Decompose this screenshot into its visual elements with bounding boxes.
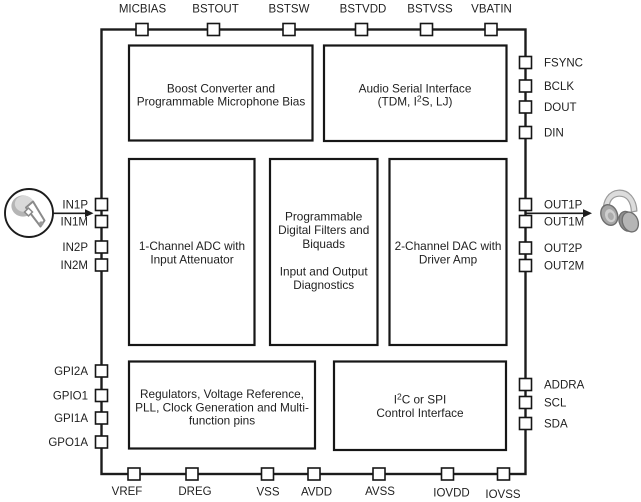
svg-text:Driver Amp: Driver Amp — [419, 253, 478, 267]
svg-text:SCL: SCL — [544, 398, 567, 410]
svg-text:function pins: function pins — [189, 414, 255, 428]
svg-text:OUT2M: OUT2M — [544, 261, 584, 273]
svg-text:Biquads: Biquads — [302, 237, 345, 251]
svg-text:Audio Serial Interface: Audio Serial Interface — [359, 81, 472, 95]
svg-text:IN2M: IN2M — [61, 260, 88, 272]
svg-text:OUT2P: OUT2P — [544, 243, 583, 255]
svg-text:Digital Filters and: Digital Filters and — [278, 223, 369, 237]
svg-text:VBATIN: VBATIN — [471, 4, 512, 16]
svg-text:MICBIAS: MICBIAS — [119, 4, 167, 16]
svg-text:GPO1A: GPO1A — [48, 437, 88, 449]
svg-text:GPIO1: GPIO1 — [53, 391, 88, 403]
svg-text:1-Channel ADC with: 1-Channel ADC with — [139, 239, 245, 253]
svg-text:IN2P: IN2P — [62, 242, 88, 254]
svg-text:Input Attenuator: Input Attenuator — [150, 253, 233, 267]
svg-text:AVDD: AVDD — [301, 487, 332, 499]
svg-text:BSTVDD: BSTVDD — [340, 4, 387, 16]
svg-text:SDA: SDA — [544, 419, 568, 431]
svg-text:DOUT: DOUT — [544, 102, 577, 114]
svg-text:GPI2A: GPI2A — [54, 366, 88, 378]
svg-text:DIN: DIN — [544, 128, 564, 140]
svg-text:PLL, Clock Generation and Mult: PLL, Clock Generation and Multi- — [135, 400, 309, 414]
svg-text:IOVDD: IOVDD — [433, 488, 469, 500]
svg-text:FSYNC: FSYNC — [544, 58, 583, 70]
svg-text:2-Channel DAC with: 2-Channel DAC with — [395, 239, 502, 253]
svg-text:AVSS: AVSS — [365, 486, 395, 498]
svg-text:VSS: VSS — [256, 487, 279, 499]
svg-text:IOVSS: IOVSS — [485, 489, 520, 501]
svg-text:BSTSW: BSTSW — [269, 4, 310, 16]
svg-text:Control Interface: Control Interface — [376, 406, 464, 420]
svg-text:BCLK: BCLK — [544, 81, 574, 93]
svg-text:BSTVSS: BSTVSS — [407, 4, 453, 16]
svg-text:Programmable Microphone Bias: Programmable Microphone Bias — [137, 94, 306, 108]
svg-text:ADDRA: ADDRA — [544, 380, 585, 392]
svg-text:IN1M: IN1M — [61, 217, 88, 229]
svg-text:VREF: VREF — [112, 486, 143, 498]
svg-text:OUT1M: OUT1M — [544, 217, 584, 229]
svg-text:Diagnostics: Diagnostics — [293, 278, 354, 292]
svg-text:OUT1P: OUT1P — [544, 200, 583, 212]
svg-text:GPI1A: GPI1A — [54, 413, 88, 425]
svg-text:IN1P: IN1P — [62, 200, 88, 212]
svg-text:BSTOUT: BSTOUT — [192, 4, 238, 16]
svg-text:(TDM, I2S, LJ): (TDM, I2S, LJ) — [378, 94, 453, 109]
svg-text:I2C or SPI: I2C or SPI — [394, 392, 447, 407]
svg-text:Regulators, Voltage Reference,: Regulators, Voltage Reference, — [140, 387, 304, 401]
svg-text:Input and Output: Input and Output — [280, 265, 369, 279]
svg-text:Programmable: Programmable — [285, 209, 363, 223]
svg-text:Boost Converter and: Boost Converter and — [167, 81, 275, 95]
svg-text:DREG: DREG — [178, 486, 211, 498]
